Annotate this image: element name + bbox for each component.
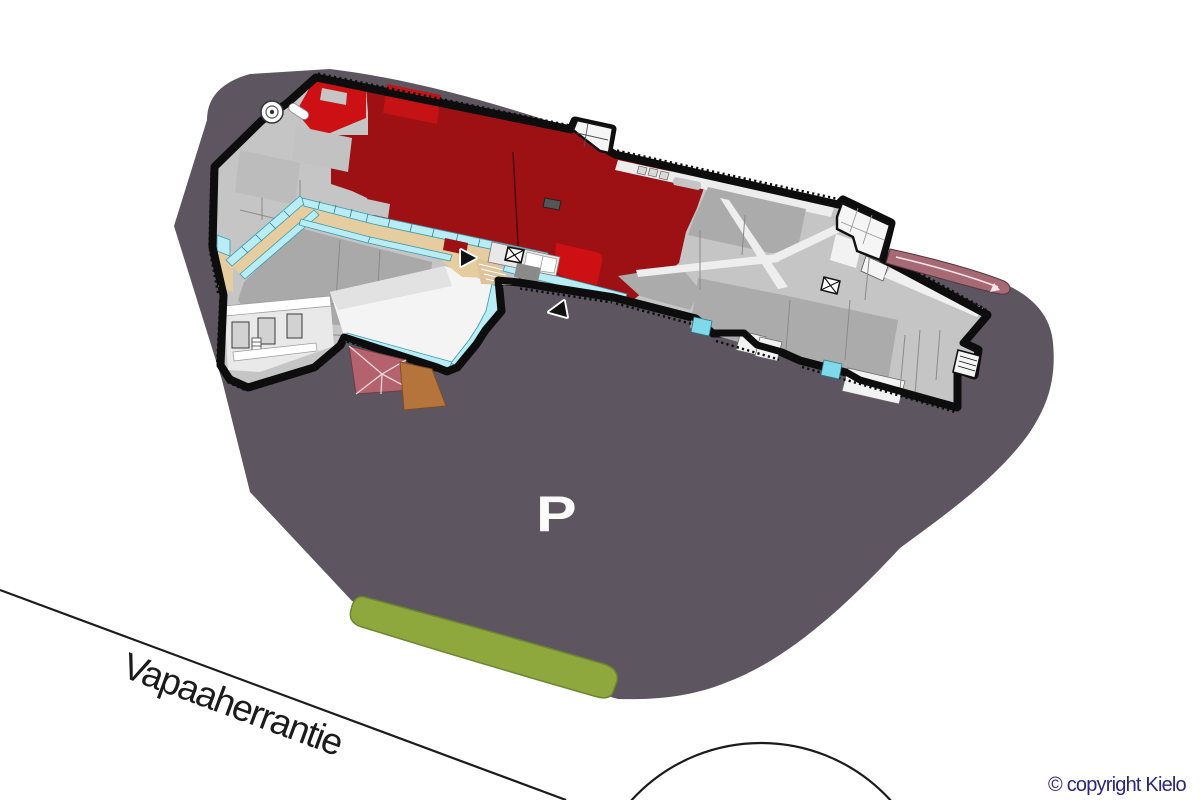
svg-text:© copyright Kielo: © copyright Kielo bbox=[1048, 774, 1187, 796]
svg-text:P: P bbox=[536, 486, 577, 542]
